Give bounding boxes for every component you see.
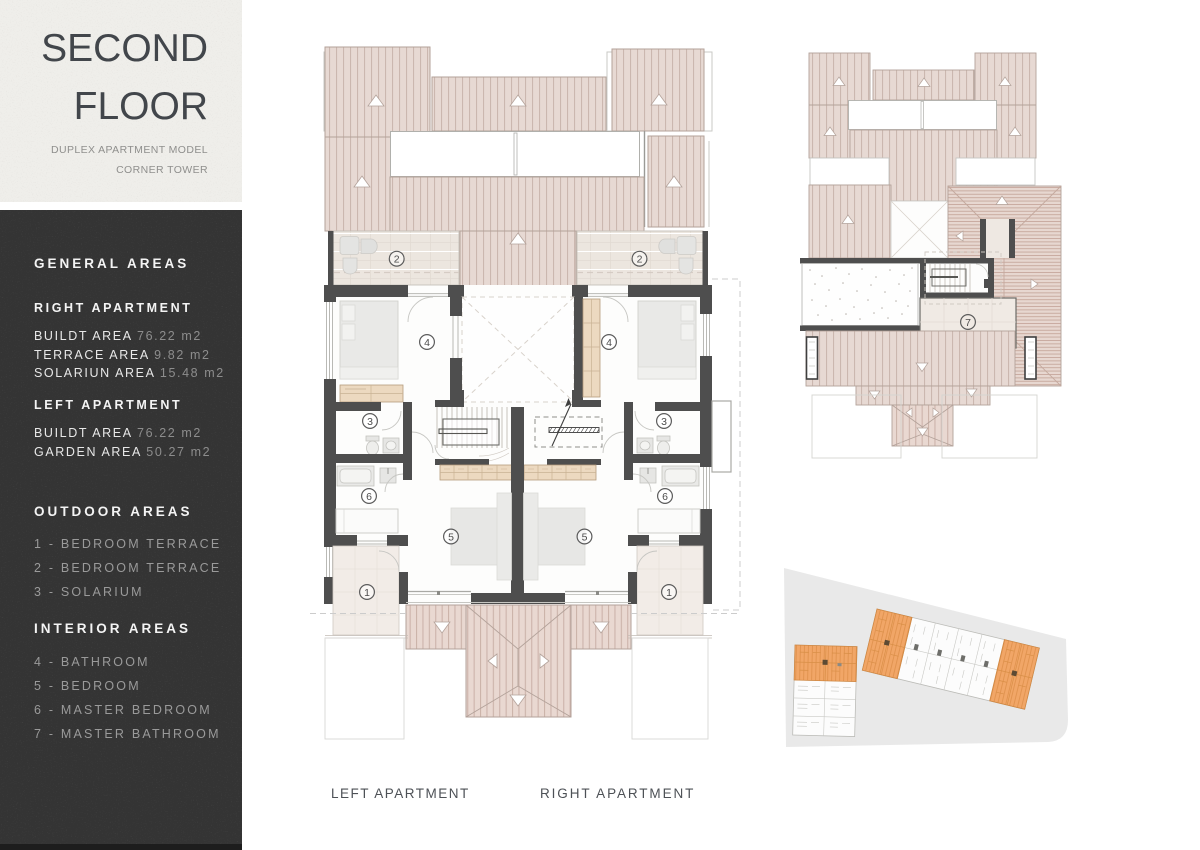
svg-text:6: 6 (662, 491, 668, 503)
svg-text:2: 2 (394, 254, 400, 266)
svg-text:7: 7 (965, 317, 971, 329)
svg-text:3: 3 (367, 416, 373, 428)
svg-text:5: 5 (582, 531, 588, 543)
svg-text:2: 2 (637, 254, 643, 266)
svg-text:3: 3 (661, 416, 667, 428)
svg-text:5: 5 (448, 531, 454, 543)
svg-text:1: 1 (364, 587, 370, 599)
svg-text:1: 1 (666, 587, 672, 599)
svg-text:6: 6 (366, 491, 372, 503)
svg-text:4: 4 (606, 337, 612, 349)
svg-text:4: 4 (424, 337, 430, 349)
